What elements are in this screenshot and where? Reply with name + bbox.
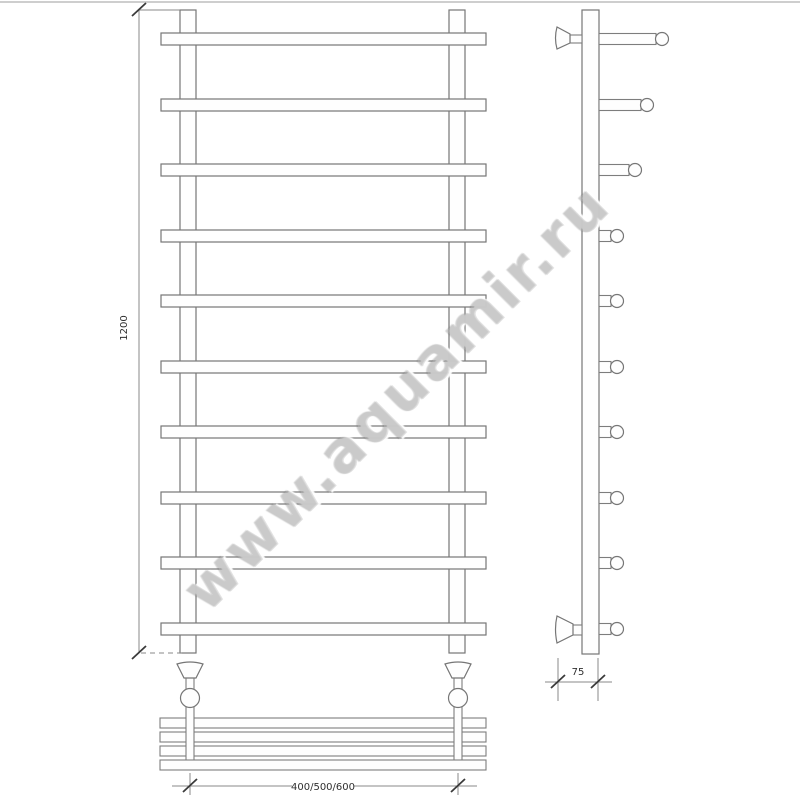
rung-end [641, 99, 654, 112]
rung-arm [599, 624, 611, 635]
shelf-tube [160, 732, 486, 742]
rung-end [611, 623, 624, 636]
rung-end [611, 492, 624, 505]
shelf-right-bracket [445, 662, 471, 678]
rung-end [611, 230, 624, 243]
rung-end [611, 295, 624, 308]
rung-arm [599, 100, 641, 111]
height-dimension-label: 1200 [119, 315, 130, 340]
ladder-bar [161, 557, 486, 569]
side-view [556, 10, 669, 654]
wall-plate [556, 27, 571, 49]
rung-arm [599, 34, 656, 45]
ladder-bar [161, 33, 486, 45]
wall-plate [556, 616, 574, 643]
rung-end [611, 361, 624, 374]
rung-arm [599, 231, 611, 242]
towel-rail-drawing: 1200 400/500/60 [0, 0, 800, 800]
ladder-bar [161, 295, 486, 307]
side-post [582, 10, 599, 654]
depth-dimension-label: 75 [572, 667, 585, 678]
shelf-tube [160, 718, 486, 728]
width-dimension-label: 400/500/600 [291, 782, 355, 793]
ladder-bar [161, 623, 486, 635]
front-bars [161, 33, 486, 635]
front-view [161, 10, 486, 653]
shelf-left-ball-joint [181, 689, 200, 708]
rung-arm [599, 296, 611, 307]
side-rungs [599, 33, 669, 636]
rung-end [611, 557, 624, 570]
rung-arm [599, 362, 611, 373]
shelf-right-ball-joint [449, 689, 468, 708]
rung-end [611, 426, 624, 439]
ladder-bar [161, 361, 486, 373]
rung-end [629, 164, 642, 177]
ladder-bar [161, 99, 486, 111]
rung-arm [599, 558, 611, 569]
rung-arm [599, 493, 611, 504]
ladder-bar [161, 230, 486, 242]
ladder-bar [161, 492, 486, 504]
shelf-detail [160, 662, 486, 770]
shelf-tube [160, 746, 486, 756]
shelf-tube [160, 760, 486, 770]
side-top-bracket [556, 27, 583, 49]
technical-drawing-page: 1200 400/500/60 [0, 0, 800, 800]
side-bottom-bracket [556, 616, 583, 643]
ladder-bar [161, 164, 486, 176]
rung-arm [599, 165, 629, 176]
width-dimension: 400/500/600 [172, 773, 477, 795]
depth-dimension: 75 [545, 658, 612, 701]
rung-end [656, 33, 669, 46]
ladder-bar [161, 426, 486, 438]
rung-arm [599, 427, 611, 438]
shelf-left-bracket [177, 662, 203, 678]
